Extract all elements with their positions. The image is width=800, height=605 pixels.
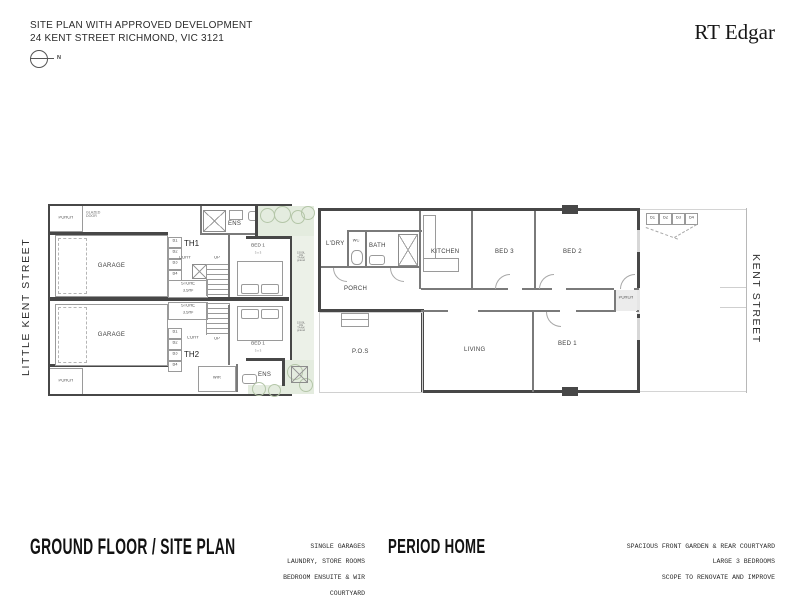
- tree-icon: [252, 382, 266, 396]
- ph-bed1-label: BED 1: [558, 341, 577, 347]
- footer-note-line: LARGE 3 BEDROOMS: [545, 558, 775, 566]
- th1-stairs: [206, 264, 230, 296]
- bed1-door-gap: [560, 310, 576, 312]
- ph-shower-icon: [398, 234, 418, 266]
- th2-bin-b3: B3: [168, 350, 182, 361]
- th2-stairs: [206, 303, 230, 335]
- th1-up-label: UP: [210, 256, 225, 260]
- th2-porch: PORCH: [50, 368, 83, 394]
- footer-center-notes: SINGLE GARAGES LAUNDRY, STORE ROOMS BEDR…: [245, 535, 365, 605]
- th1-ens-label: ENS: [228, 221, 241, 227]
- ph-ldry-label: L'DRY: [326, 241, 345, 247]
- ph-wc-label: WC: [351, 239, 362, 243]
- th1-ens-east-wall: [255, 206, 258, 238]
- th1-bin-b1: B1: [168, 237, 182, 248]
- th1-laundry-trough-icon: [192, 264, 207, 279]
- ph-front-porch-label: PORCH: [617, 296, 635, 300]
- th2-pillow-left: [241, 309, 259, 319]
- site-plan-page: { "header": { "title_line1": "SITE PLAN …: [0, 0, 800, 600]
- ph-front-window: [637, 230, 640, 252]
- front-fence-line: [746, 208, 747, 393]
- th2-ens-wall: [236, 364, 238, 392]
- tree-icon: [260, 208, 275, 223]
- garden-bin-b4-label: B4: [688, 216, 695, 220]
- hall-north-wall: [421, 288, 639, 290]
- garden-bin-b3-label: B3: [675, 216, 682, 220]
- th2-bin-b4-label: B4: [171, 363, 179, 367]
- th1-pillow-right: [261, 284, 279, 294]
- garden-dash-line: [674, 224, 697, 238]
- bed2-door-arc: [539, 274, 554, 289]
- wc-left-wall: [347, 230, 349, 268]
- ph-bath-label: BATH: [369, 243, 386, 249]
- pos-area: [319, 312, 423, 393]
- north-label: N: [57, 55, 61, 61]
- footer-note-line: COURTYARD: [245, 590, 365, 598]
- th1-ldry-label: L'DRY: [175, 256, 195, 260]
- th1-store-label: STORE: [175, 282, 201, 286]
- ph-front-window: [637, 318, 640, 340]
- th2-wir: WIR: [198, 366, 236, 392]
- ph-south-wall: [421, 390, 640, 393]
- th1-bin-b3-label: B3: [171, 261, 179, 265]
- tree-icon: [274, 206, 291, 223]
- bed3-bed2-wall: [534, 211, 536, 289]
- th2-bin-b2-label: B2: [171, 341, 179, 345]
- th2-garage-label: GARAGE: [98, 332, 125, 338]
- bath-left-wall: [365, 230, 367, 268]
- th1-garage-label: GARAGE: [98, 263, 125, 269]
- th2-car-space: [58, 307, 87, 363]
- th1-bin-b2-label: B2: [171, 250, 179, 254]
- th1-basin-icon: [229, 210, 243, 220]
- chimney-top: [562, 205, 578, 214]
- garden-dash-line: [646, 227, 678, 240]
- th2-bin-b4: B4: [168, 361, 182, 372]
- kitchen-bench: [423, 258, 459, 272]
- tank-note-th2: 1500L UG TANK gravel: [295, 322, 308, 332]
- ldry-door-arc: [333, 268, 347, 282]
- footer-note-line: BEDROOM ENSUITE & WIR: [245, 574, 365, 582]
- th2-bin-b2: B2: [168, 339, 182, 350]
- th2-ens-label: ENS: [258, 372, 271, 378]
- garden-bin-b2-label: B2: [662, 216, 669, 220]
- th2-bed-size: 3 x 3: [246, 350, 270, 353]
- th2-porch-label: PORCH: [59, 379, 74, 383]
- th2-bin-b1: B1: [168, 328, 182, 339]
- footer-note-line: LAUNDRY, STORE ROOMS: [245, 558, 365, 566]
- th1-bed-wall: [228, 235, 230, 297]
- th2-up-label: UP: [210, 337, 225, 341]
- garden-bin-b1: B1: [646, 213, 659, 225]
- brand-logo: RT Edgar: [694, 20, 775, 45]
- th1-bed-size: 3 x 3: [246, 252, 270, 255]
- bed1-door-arc: [546, 312, 561, 327]
- th1-bin-b1-label: B1: [171, 239, 179, 243]
- living-bed1-wall: [532, 312, 534, 392]
- footer-note-line: SCOPE TO RENOVATE AND IMPROVE: [545, 574, 775, 582]
- th1-shower-icon: [203, 210, 226, 232]
- th2-bed-icon: [237, 306, 283, 341]
- ph-living-label: LIVING: [464, 347, 485, 353]
- tank-note-line: gravel: [295, 330, 308, 333]
- footer-note-line: SINGLE GARAGES: [245, 543, 365, 551]
- th1-bed-icon: [237, 261, 283, 296]
- ph-basin-icon: [369, 255, 385, 265]
- garden-north-line: [640, 209, 746, 210]
- th1-car-space: [58, 238, 87, 294]
- entry-door-arc: [620, 274, 635, 289]
- th2-ens-east-wall: [282, 358, 285, 386]
- ph-pos-label: P.O.S: [352, 349, 369, 355]
- garden-south-line: [640, 391, 746, 392]
- bed3-door-arc: [495, 274, 510, 289]
- th1-store-area: 3.5m²: [175, 289, 201, 293]
- street-label-kent: KENT STREET: [750, 254, 762, 344]
- bed2-door-gap: [552, 288, 566, 290]
- th2-bed-label: BED 1: [242, 342, 275, 346]
- north-circle: [30, 50, 48, 68]
- tree-icon: [268, 384, 281, 397]
- th1-bin-b4-label: B4: [171, 272, 179, 276]
- th2-ldry-label: L'DRY: [183, 336, 203, 340]
- living-opening-gap: [448, 310, 478, 312]
- th1-bed-label: BED 1: [242, 244, 275, 248]
- th2-unit-label: TH2: [184, 350, 199, 359]
- chimney-bottom: [562, 387, 578, 396]
- footer-center-title: PERIOD HOME: [388, 536, 486, 559]
- ph-kitchen-label: KITCHEN: [431, 249, 459, 255]
- th1-pillow-left: [241, 284, 259, 294]
- pos-step: [341, 319, 369, 327]
- wc-bath-top-wall: [347, 230, 422, 232]
- footer-note-line: SPACIOUS FRONT GARDEN & REAR COURTYARD: [545, 543, 775, 551]
- street-label-little-kent: LITTLE KENT STREET: [20, 228, 32, 376]
- tank-note-line: gravel: [295, 260, 308, 263]
- th1-unit-label: TH1: [184, 239, 199, 248]
- ph-rear-porch-label: PORCH: [344, 286, 367, 292]
- th2-pillow-right: [261, 309, 279, 319]
- ph-north-wall: [318, 208, 640, 211]
- th1-store: STORE 3.5m²: [168, 280, 208, 298]
- garden-bin-b2: B2: [659, 213, 672, 225]
- garden-bin-b3: B3: [672, 213, 685, 225]
- page-title-line1: SITE PLAN WITH APPROVED DEVELOPMENT: [30, 20, 253, 31]
- kitchen-left-wall: [419, 211, 421, 289]
- ph-bed2-label: BED 2: [563, 249, 582, 255]
- th2-bed-south-wall: [246, 358, 284, 361]
- crossover-line: [720, 287, 746, 288]
- bath-door-arc: [390, 268, 404, 282]
- ph-toilet-icon: [351, 250, 363, 265]
- garden-bin-b1-label: B1: [649, 216, 656, 220]
- crossover-line: [720, 307, 746, 308]
- th2-bin-b1-label: B1: [171, 330, 179, 334]
- footer-right-notes: SPACIOUS FRONT GARDEN & REAR COURTYARD L…: [545, 535, 775, 590]
- th1-bed-north-wall: [246, 236, 290, 239]
- th1-glazed-door-label: GLAZED DOOR: [86, 211, 102, 218]
- front-porch-floor: [616, 290, 637, 311]
- kitchen-bed3-wall: [471, 211, 473, 289]
- footer-left-title: GROUND FLOOR / SITE PLAN: [30, 534, 235, 560]
- north-line: [30, 58, 54, 59]
- th2-bin-b3-label: B3: [171, 352, 179, 356]
- page-title-line2: 24 KENT STREET RICHMOND, VIC 3121: [30, 33, 224, 44]
- ph-rear-wall: [318, 208, 321, 312]
- bed3-door-gap: [508, 288, 522, 290]
- tank-note-th1: 1500L UG TANK gravel: [295, 252, 308, 262]
- th2-store-label: STORE: [175, 304, 201, 308]
- tree-icon: [301, 206, 315, 220]
- ph-bed3-label: BED 3: [495, 249, 514, 255]
- th2-store-area: 3.5m²: [175, 311, 201, 315]
- th1-porch: PORCH: [50, 206, 83, 232]
- th2-store: STORE 3.5m²: [168, 302, 208, 320]
- th1-bin-b3: B3: [168, 259, 182, 270]
- outdoor-store-icon: [291, 366, 308, 383]
- th2-bed-wall: [228, 305, 230, 365]
- th2-wir-label: WIR: [213, 376, 221, 380]
- th1-ens-left-wall: [200, 206, 202, 233]
- th1-porch-label: PORCH: [59, 216, 74, 220]
